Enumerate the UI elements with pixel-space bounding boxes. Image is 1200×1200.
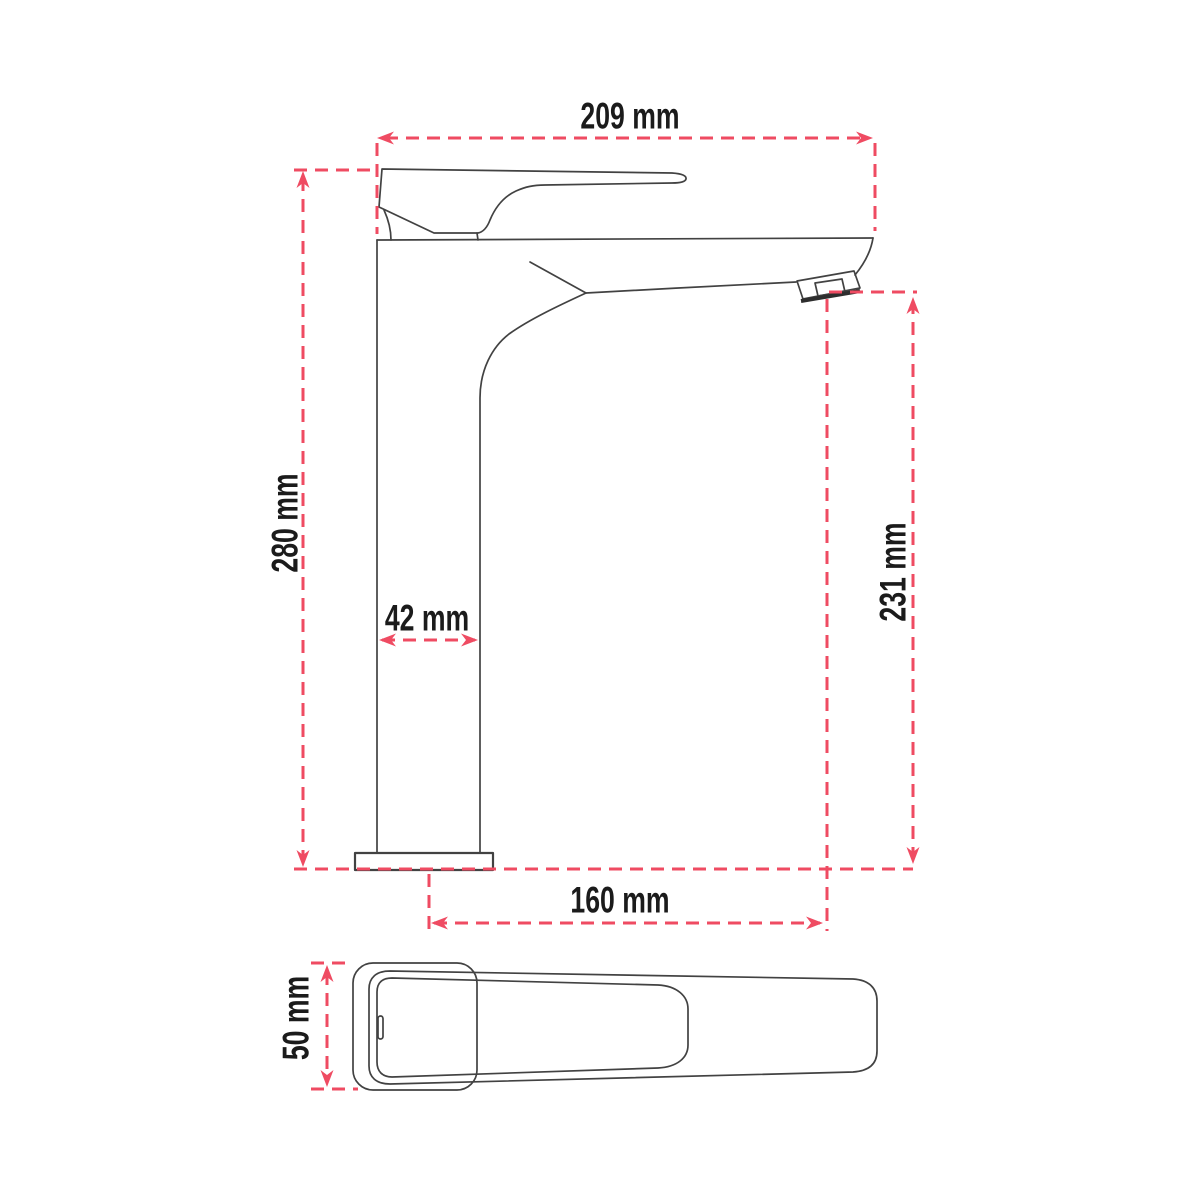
handle-collar-line (384, 210, 391, 240)
technical-drawing-canvas: 209 mm 280 mm 42 mm 231 mm 160 mm (0, 0, 1200, 1200)
handle-top-view-outline (369, 971, 877, 1084)
base-plate (355, 853, 493, 870)
arrowhead-right (806, 917, 823, 930)
dimension-body-width: 42 mm (379, 597, 478, 646)
dimension-overall-width: 209 mm (377, 95, 875, 234)
handle-indicator-slot (378, 1016, 383, 1039)
dimension-label-handle-depth: 50 mm (275, 976, 316, 1060)
side-view (355, 169, 873, 870)
body-top-line (377, 238, 873, 240)
dimension-spout-height: 231 mm (829, 292, 920, 864)
dimension-overall-height: 280 mm (264, 170, 913, 869)
body-right-edge (855, 238, 873, 275)
body-top-view-outline (353, 963, 477, 1090)
dimension-spout-reach: 160 mm (429, 299, 827, 931)
dimension-label-spout-reach: 160 mm (570, 879, 669, 920)
spout-crease-line (530, 262, 586, 293)
dimension-handle-depth: 50 mm (275, 963, 358, 1089)
top-view (353, 963, 877, 1090)
riser-right-edge (480, 293, 586, 853)
dimension-label-overall-width: 209 mm (580, 95, 679, 136)
dimension-label-body-width: 42 mm (385, 597, 469, 638)
dimension-label-overall-height: 280 mm (264, 473, 305, 572)
faucet-dimension-drawing: 209 mm 280 mm 42 mm 231 mm 160 mm (0, 0, 1200, 1200)
handle-lever-outline (379, 169, 686, 233)
spout-underside-line (586, 282, 796, 293)
handle-top-view-inner-outline (377, 978, 688, 1077)
dimension-label-spout-height: 231 mm (872, 522, 913, 621)
arrowhead-down (321, 1070, 334, 1087)
